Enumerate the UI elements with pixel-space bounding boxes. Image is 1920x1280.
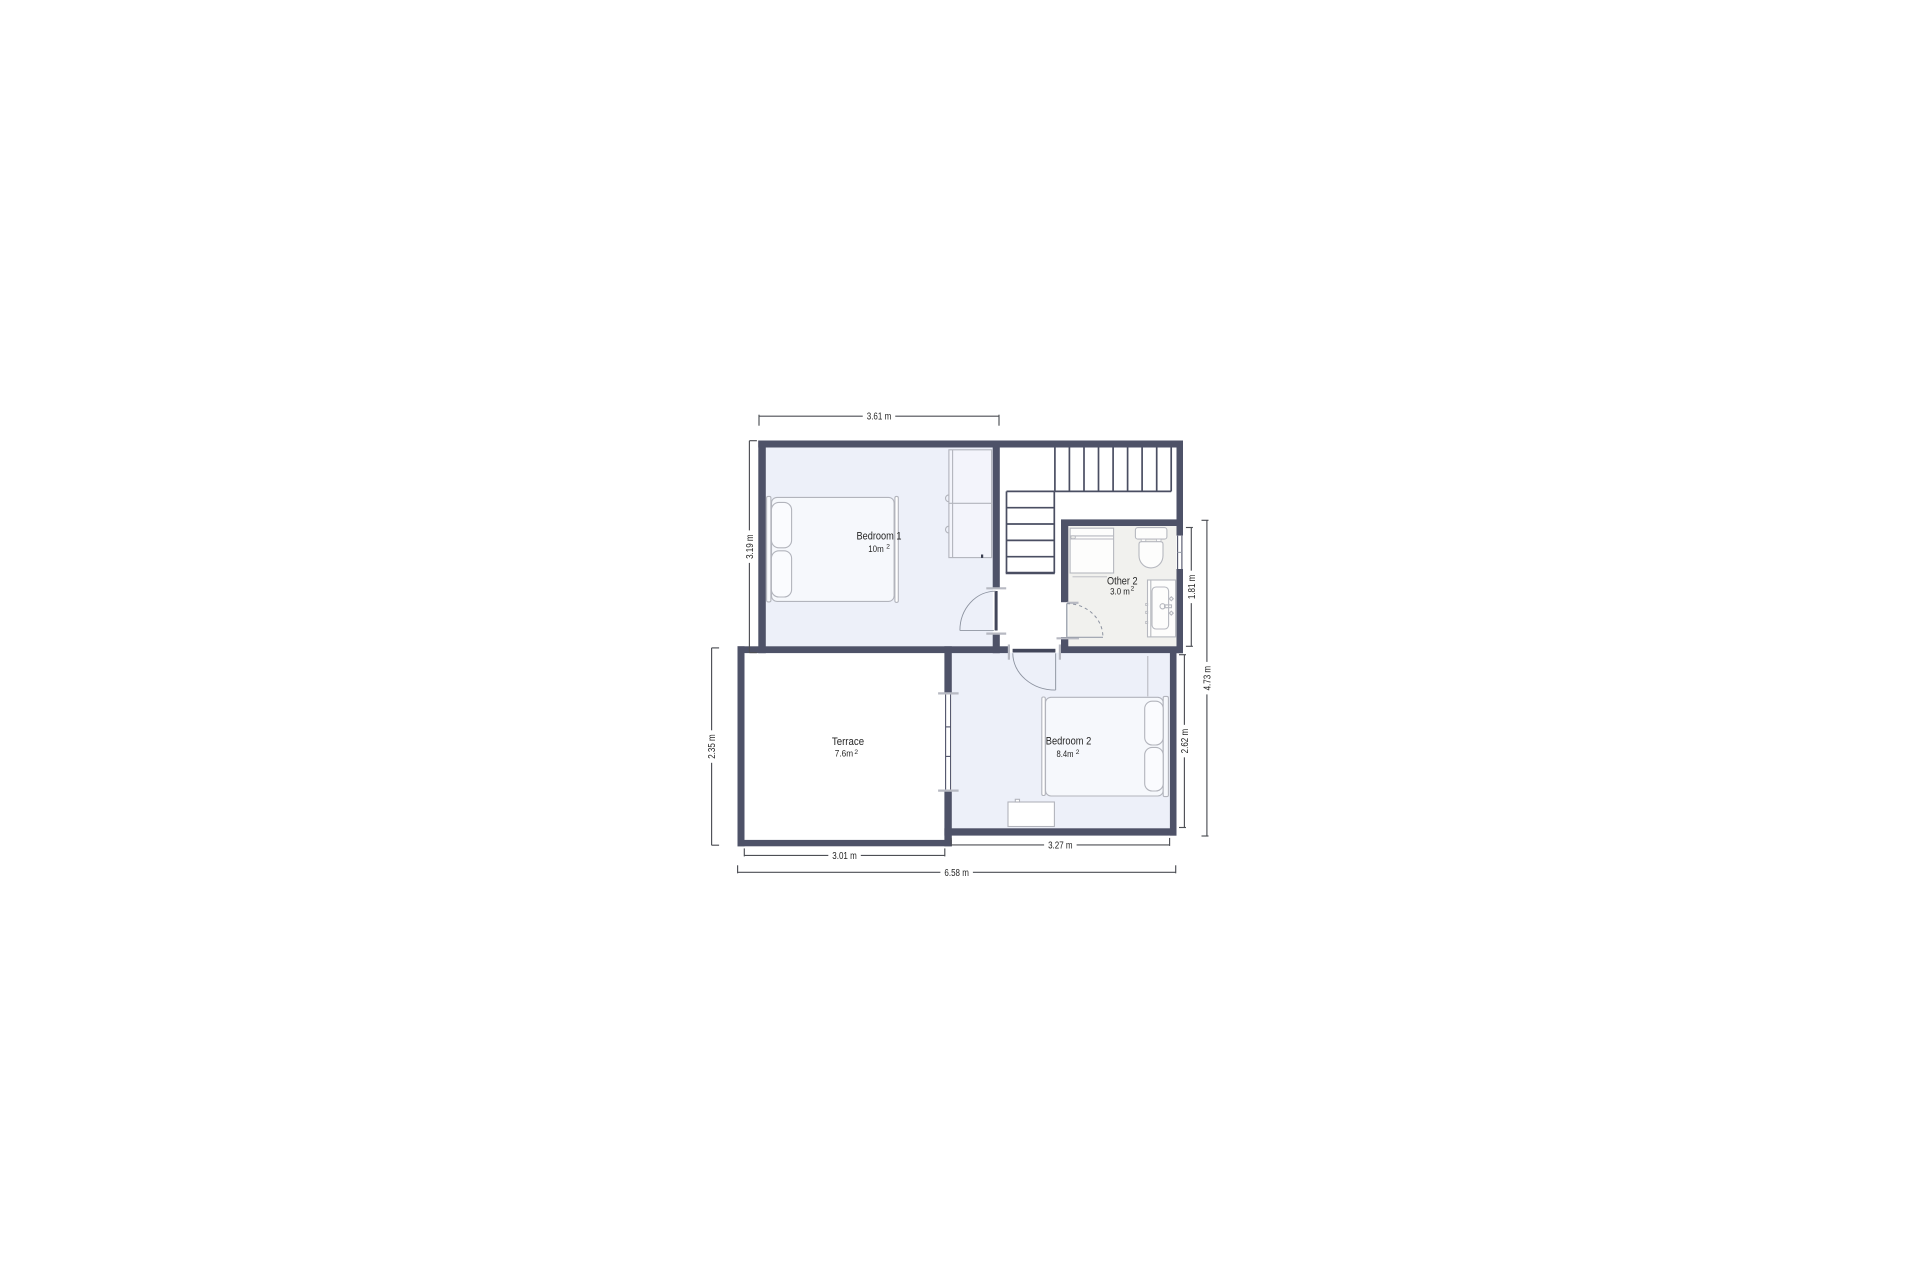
svg-text:Bedroom 1: Bedroom 1 xyxy=(857,531,902,543)
svg-text:2: 2 xyxy=(854,749,858,756)
svg-text:2.62 m: 2.62 m xyxy=(1180,729,1191,754)
svg-text:Bedroom 2: Bedroom 2 xyxy=(1046,735,1092,747)
svg-text:1.81 m: 1.81 m xyxy=(1187,575,1198,600)
svg-text:6.58 m: 6.58 m xyxy=(944,868,969,879)
svg-text:10m: 10m xyxy=(868,544,884,555)
svg-text:7.6m: 7.6m xyxy=(835,749,853,760)
svg-text:2.35 m: 2.35 m xyxy=(707,734,718,759)
svg-text:3.19 m: 3.19 m xyxy=(745,534,756,559)
svg-text:2: 2 xyxy=(886,543,890,550)
svg-text:8.4m: 8.4m xyxy=(1057,749,1074,760)
svg-text:3.0 m: 3.0 m xyxy=(1110,586,1130,597)
svg-text:3.61 m: 3.61 m xyxy=(867,412,892,423)
svg-text:3.27 m: 3.27 m xyxy=(1048,840,1073,851)
svg-text:2: 2 xyxy=(1131,586,1135,593)
svg-text:3.01 m: 3.01 m xyxy=(832,851,857,862)
svg-text:Terrace: Terrace xyxy=(832,736,864,748)
svg-text:4.73 m: 4.73 m xyxy=(1202,666,1213,691)
svg-text:2: 2 xyxy=(1076,749,1080,756)
